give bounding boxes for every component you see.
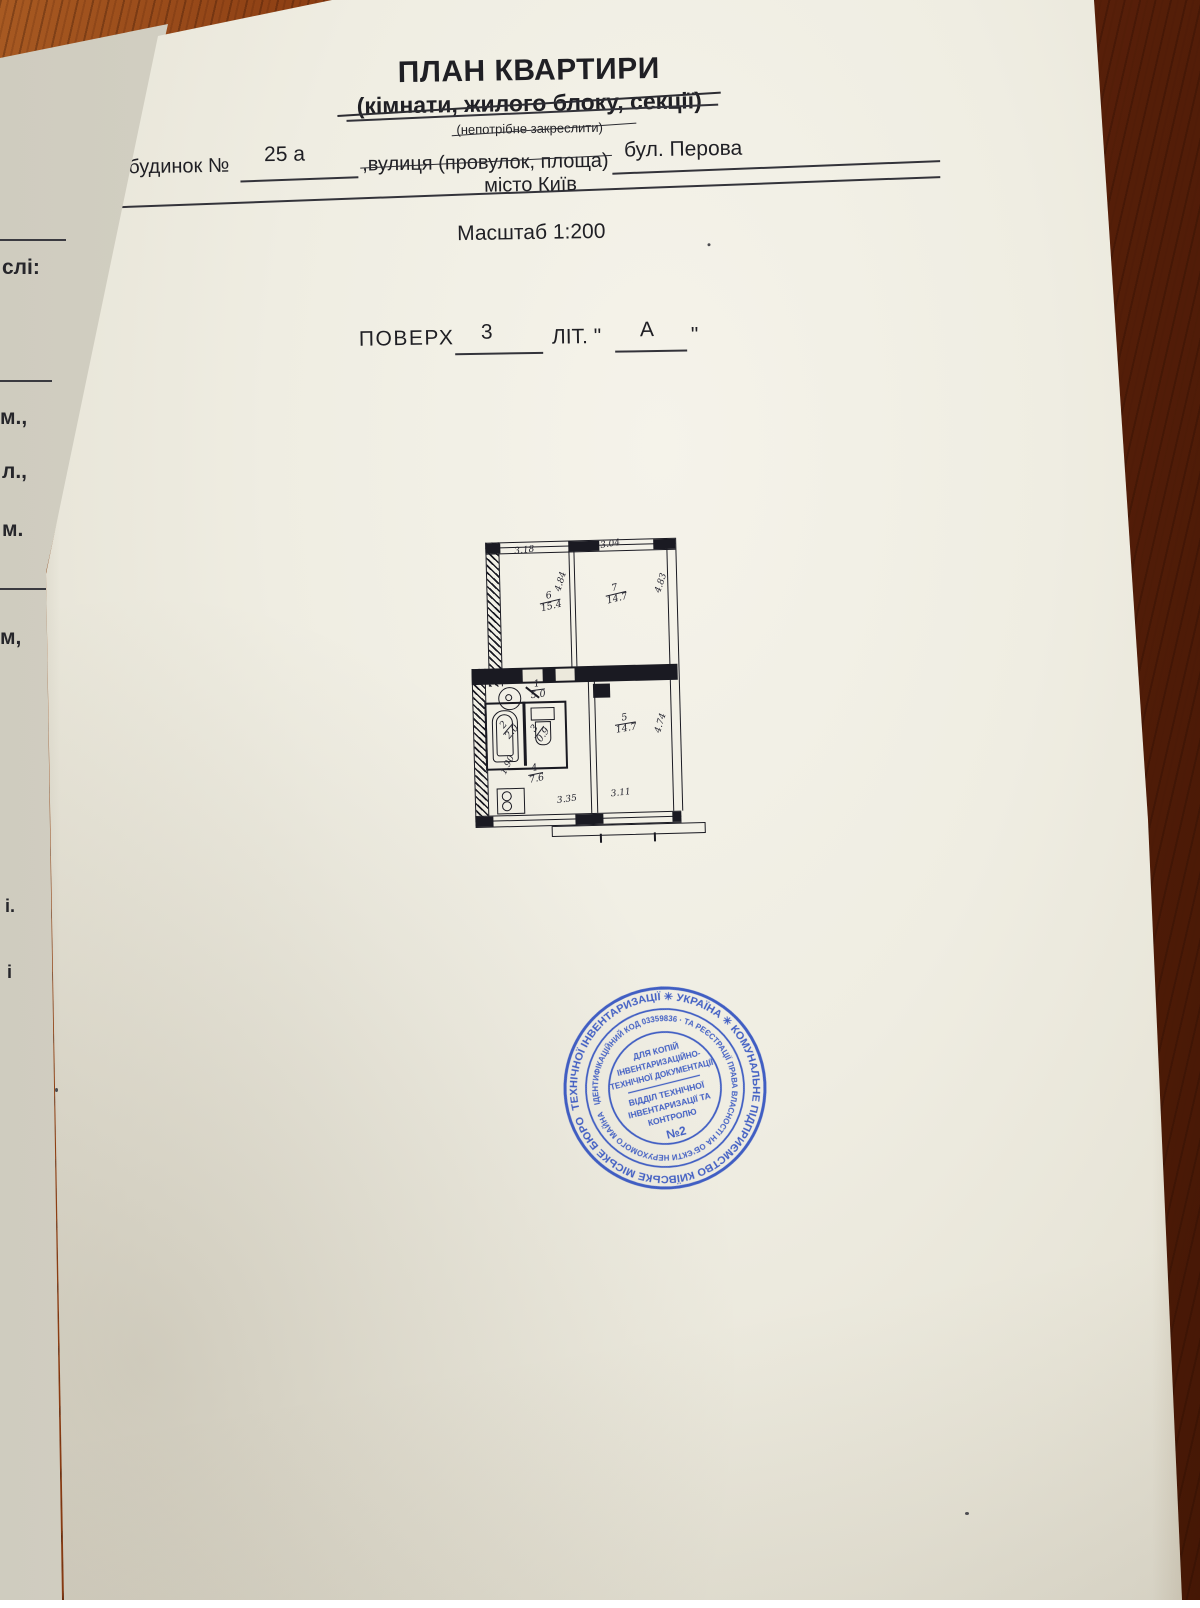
- subtitle-note: (непотрібне закреслити): [320, 118, 740, 140]
- room5-label: 514.7: [613, 711, 637, 736]
- balcony-tick: [654, 832, 656, 841]
- margin-rule: [0, 588, 46, 590]
- liter-label: ЛІТ. ": [552, 325, 602, 350]
- floor-plan: 615.4 714.7 15.0 22.0 30.9 47.6 514.7 3.…: [464, 515, 718, 861]
- liter-value: А: [640, 318, 654, 342]
- floor-label: ПОВЕРХ: [359, 326, 455, 351]
- dim-room6-depth: 4.84: [554, 571, 569, 593]
- house-number-label: будинок №: [128, 155, 229, 180]
- dim-room5-width: 3.11: [610, 787, 631, 799]
- document-title: ПЛАН КВАРТИРИ: [329, 51, 729, 91]
- liter-value-line: [615, 350, 687, 353]
- house-number-value: 25 а: [264, 143, 305, 168]
- margin-fragment: м,: [0, 626, 21, 650]
- paper-speck: [55, 1088, 58, 1092]
- stove: [497, 788, 526, 815]
- floor-value: 3: [481, 321, 493, 345]
- margin-rule: [0, 239, 66, 241]
- document-page: ПЛАН КВАРТИРИ (кімнати, жилого блоку, се…: [0, 0, 1200, 1600]
- dim-room5-depth: 4.74: [653, 712, 668, 734]
- margin-fragment: л.,: [2, 460, 27, 484]
- room7-label: 714.7: [603, 581, 629, 607]
- street-value: бул. Перова: [624, 137, 743, 163]
- hall-label: 15.0: [529, 678, 547, 702]
- wall-left-upper: [485, 542, 503, 686]
- ventilation-shaft: [593, 683, 610, 697]
- margin-fragment: і.: [5, 896, 15, 917]
- room6-label: 615.4: [537, 589, 563, 615]
- floor-value-line: [455, 352, 543, 355]
- margin-rule: [0, 380, 52, 382]
- margin-fragment: і: [7, 962, 12, 983]
- wall-room6-room7-divider: [568, 550, 577, 666]
- stamp-number: №2: [665, 1123, 688, 1142]
- paper-speck: [965, 1512, 969, 1515]
- margin-fragment: м.: [2, 518, 23, 542]
- balcony-tick: [600, 834, 602, 843]
- dim-room6-width: 3.18: [514, 545, 535, 557]
- margin-fragment: слі:: [2, 256, 40, 280]
- liter-close-quote: ": [691, 323, 699, 347]
- toilet-tank: [530, 707, 554, 721]
- dim-kitchen-width: 3.35: [556, 793, 577, 806]
- margin-fragment: м.,: [0, 406, 27, 430]
- paper-speck: [707, 243, 710, 246]
- scale-label: Масштаб 1:200: [321, 218, 741, 249]
